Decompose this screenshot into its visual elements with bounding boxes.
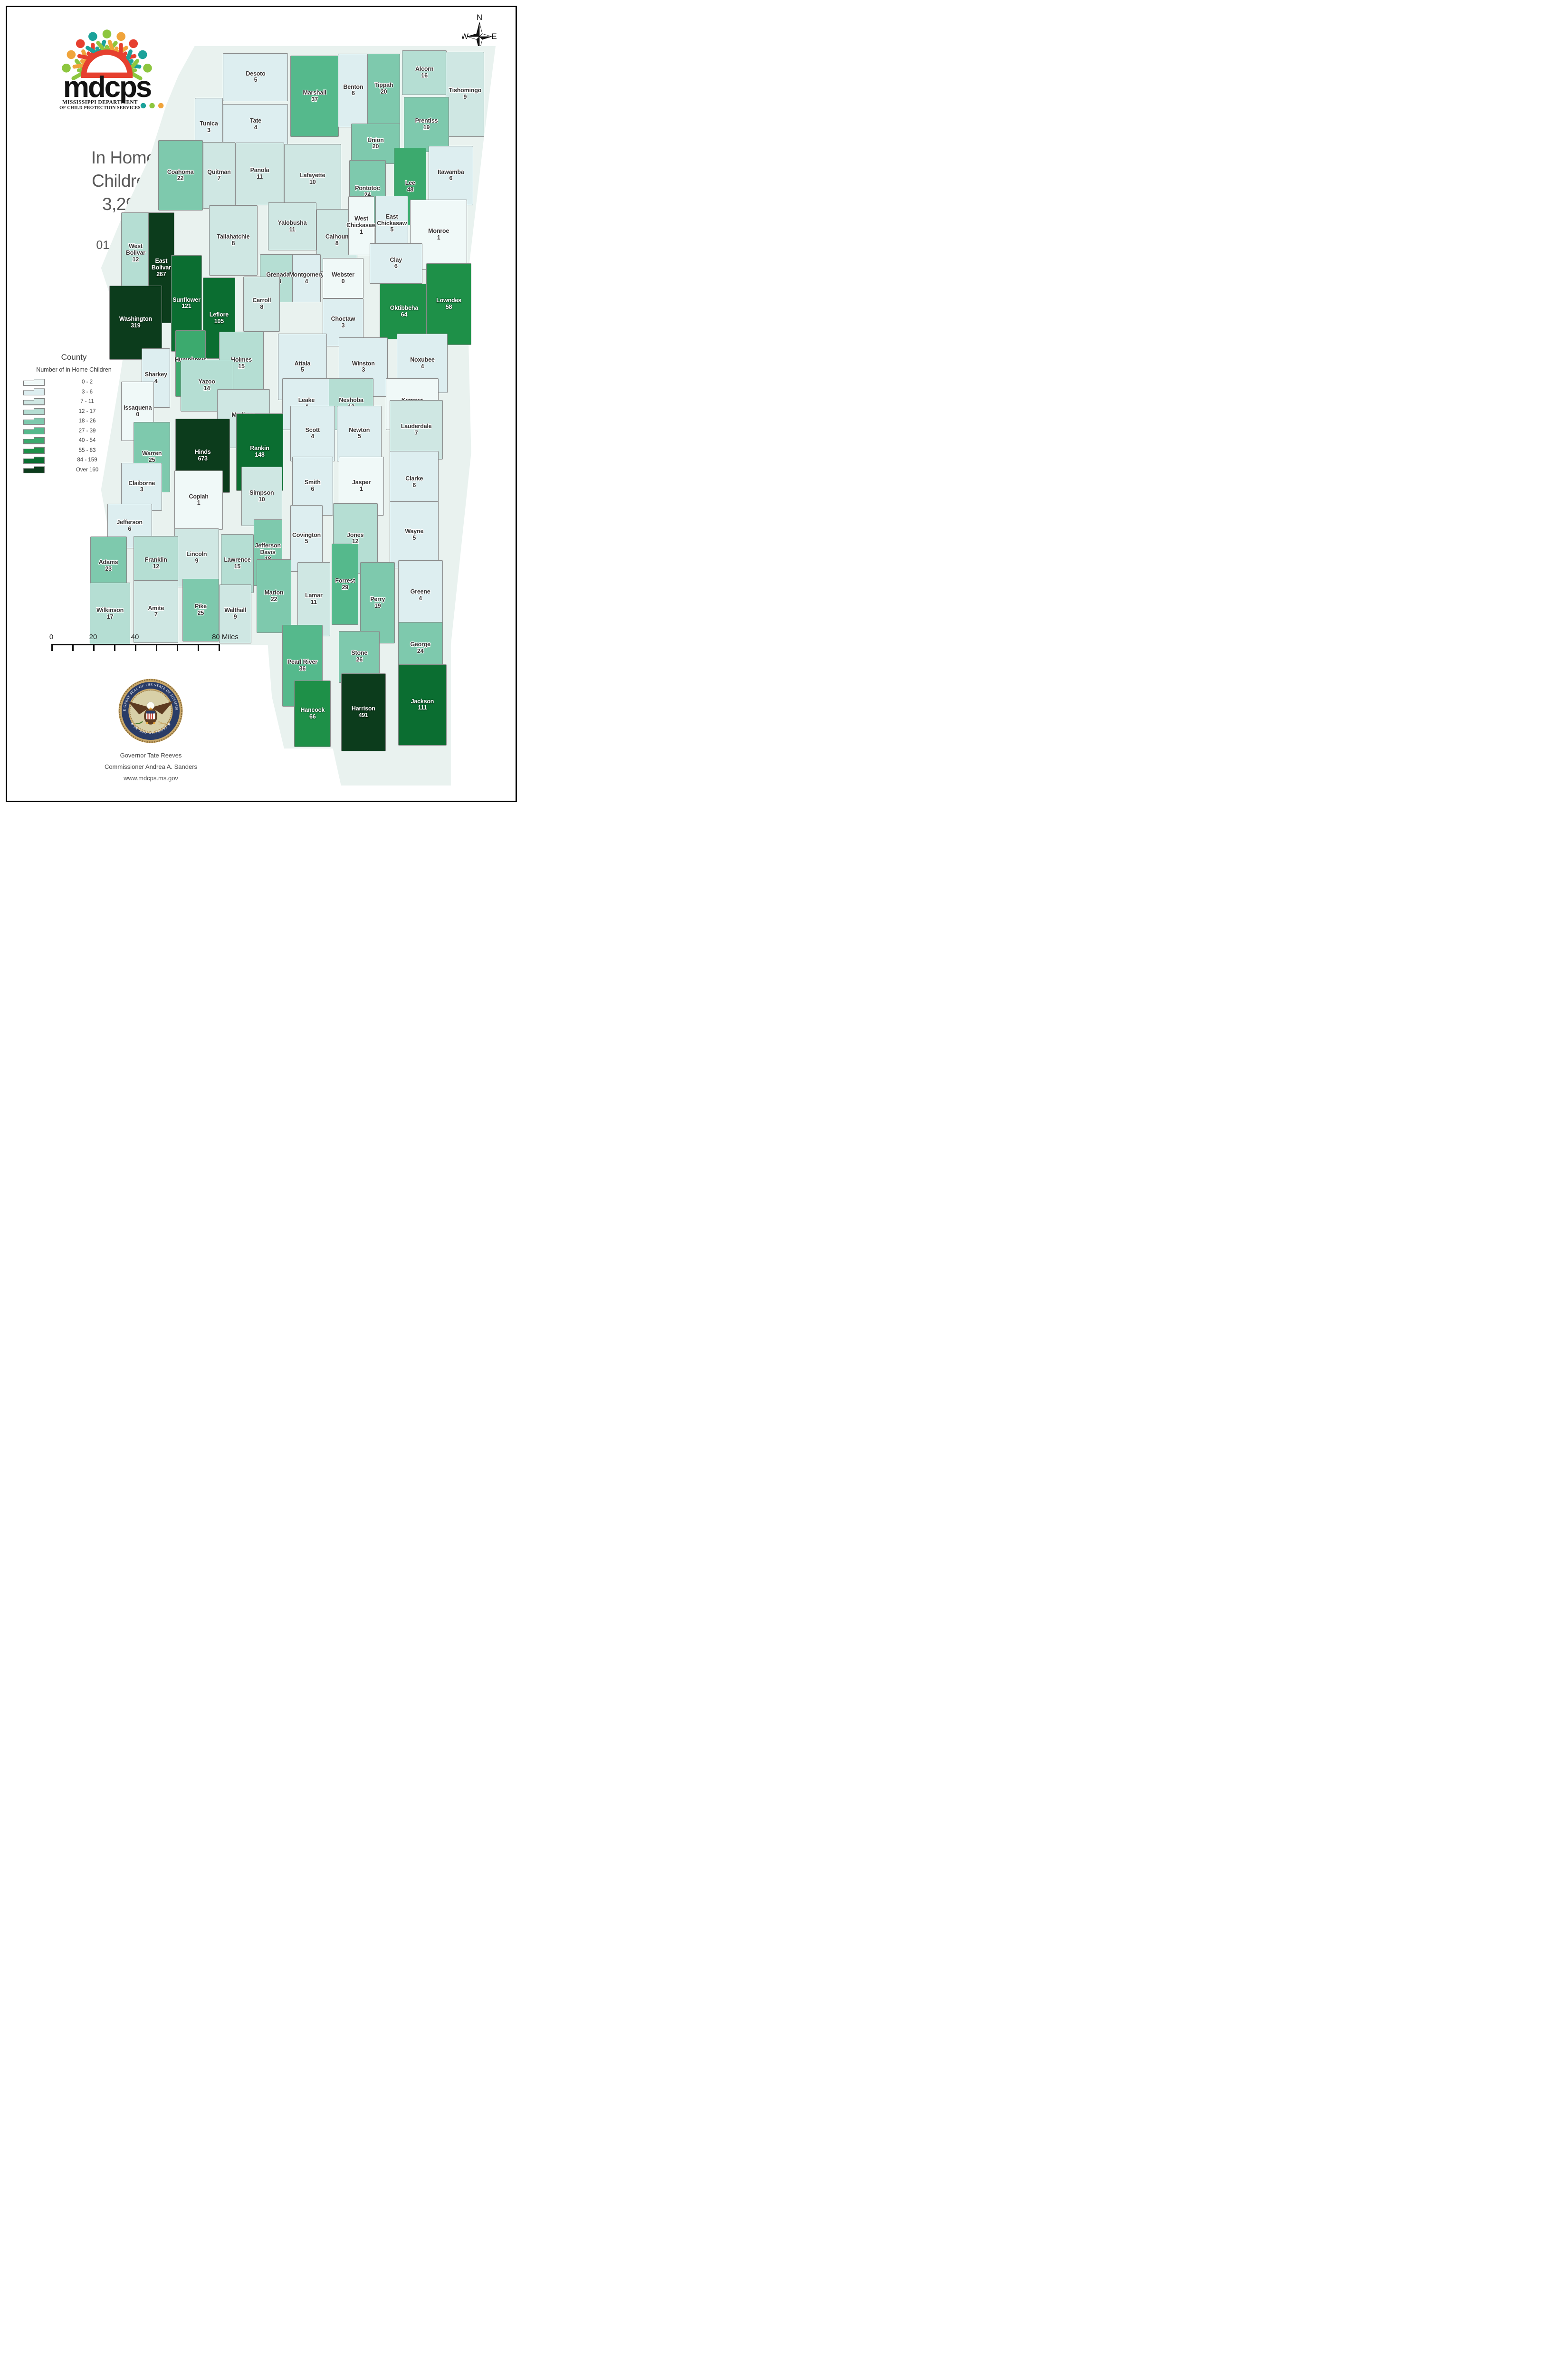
county-name: Perry <box>370 596 385 603</box>
county-montgomery: Montgomery4 <box>292 254 321 302</box>
county-value: 11 <box>257 174 263 181</box>
county-name: Simpson <box>249 490 274 497</box>
scale-tick <box>93 644 95 651</box>
scale-label-20: 20 <box>89 633 97 641</box>
county-value: 5 <box>412 535 416 542</box>
compass-e: E <box>491 32 497 41</box>
scale-bar-line <box>51 644 220 645</box>
county-value: 6 <box>412 482 416 489</box>
county-value: 6 <box>311 486 314 493</box>
credit-governor: Governor Tate Reeves <box>57 750 245 761</box>
county-value: 6 <box>352 90 355 97</box>
scale-label-40: 40 <box>131 633 139 641</box>
scale-bar-labels: 0 20 40 80 Miles <box>51 633 256 642</box>
county-value: 4 <box>254 125 258 131</box>
county-value: 4 <box>305 278 308 285</box>
county-name: Carroll <box>252 297 271 304</box>
county-value: 29 <box>342 584 349 591</box>
county-forrest: Forrest29 <box>332 544 358 625</box>
county-value: 58 <box>446 304 452 311</box>
county-value: 22 <box>271 596 277 603</box>
county-value: 10 <box>258 497 265 503</box>
county-name: Webster <box>332 272 354 278</box>
county-name: Holmes <box>231 357 252 364</box>
county-value: 4 <box>419 595 422 602</box>
county-value: 105 <box>214 318 224 325</box>
scale-label-0: 0 <box>49 633 53 641</box>
county-value: 8 <box>335 240 339 247</box>
county-name: East Chickasaw <box>376 214 407 227</box>
page: mdcps MISSISSIPPI DEPARTMENT OF CHILD PR… <box>0 0 523 808</box>
scale-tick <box>51 644 53 651</box>
county-name: Choctaw <box>331 316 355 323</box>
county-name: West Bolivar <box>122 243 149 257</box>
county-carroll: Carroll8 <box>243 277 280 332</box>
county-name: Prentiss <box>415 118 438 125</box>
credits: Governor Tate Reeves Commissioner Andrea… <box>57 750 245 784</box>
county-value: 3 <box>362 367 365 374</box>
county-harrison: Harrison491 <box>341 673 386 751</box>
county-value: 9 <box>463 94 467 101</box>
county-value: 11 <box>311 599 317 606</box>
county-value: 9 <box>234 614 237 621</box>
county-value: 319 <box>131 323 140 329</box>
county-name: Jefferson <box>116 519 142 526</box>
scale-label-80: 80 Miles <box>212 633 239 641</box>
county-value: 26 <box>356 657 363 663</box>
legend-swatch <box>23 437 45 444</box>
county-wayne: Wayne5 <box>390 501 439 568</box>
county-value: 14 <box>203 385 210 392</box>
county-prentiss: Prentiss19 <box>404 97 449 153</box>
county-value: 491 <box>359 712 368 719</box>
legend-swatch <box>23 447 45 454</box>
county-tate: Tate4 <box>223 104 288 145</box>
county-benton: Benton6 <box>338 54 368 128</box>
county-value: 48 <box>407 187 413 193</box>
county-name: Hancock <box>300 707 325 714</box>
county-name: Jefferson Davis <box>255 543 281 556</box>
legend-swatch <box>23 418 45 425</box>
county-value: 3 <box>207 127 210 134</box>
county-value: 111 <box>418 705 427 711</box>
county-name: Lee <box>405 180 415 187</box>
scale-tick <box>177 644 178 651</box>
county-value: 7 <box>218 175 221 182</box>
county-value: 6 <box>128 526 131 533</box>
county-yalobusha: Yalobusha11 <box>268 202 317 250</box>
legend-swatch <box>23 466 45 473</box>
county-name: Wilkinson <box>96 607 124 614</box>
county-pike: Pike25 <box>182 579 219 642</box>
scale-bar: 0 20 40 80 Miles <box>51 633 256 658</box>
county-value: 36 <box>299 666 306 672</box>
county-lowndes: Lowndes58 <box>426 263 471 345</box>
county-value: 5 <box>254 77 258 84</box>
county-value: 121 <box>182 303 191 310</box>
county-quitman: Quitman7 <box>203 142 235 209</box>
county-webster: Webster0 <box>323 258 363 299</box>
county-value: 4 <box>154 378 158 385</box>
county-value: 64 <box>401 312 408 318</box>
county-name: Leflore <box>210 312 229 318</box>
scale-tick <box>156 644 157 651</box>
credit-website: www.mdcps.ms.gov <box>57 773 245 784</box>
county-newton: Newton5 <box>337 406 382 461</box>
county-value: 1 <box>360 486 363 493</box>
county-value: 0 <box>136 412 139 418</box>
county-tallahatchie: Tallahatchie8 <box>209 205 258 276</box>
county-value: 7 <box>415 430 418 437</box>
county-value: 4 <box>421 364 424 370</box>
county-name: Clarke <box>405 476 423 482</box>
scale-tick <box>135 644 136 651</box>
county-name: Smith <box>305 479 321 486</box>
compass-n: N <box>477 14 482 22</box>
county-value: 1 <box>360 229 363 236</box>
county-name: Hinds <box>195 449 211 456</box>
county-value: 148 <box>255 452 264 459</box>
scale-tick <box>198 644 199 651</box>
county-name: Sharkey <box>145 372 167 378</box>
county-map: Desoto5Marshall37Benton6Tippah20Alcorn16… <box>89 46 496 786</box>
county-itawamba: Itawamba6 <box>429 146 473 205</box>
county-clay: Clay6 <box>370 243 422 284</box>
county-copiah: Copiah1 <box>174 470 223 529</box>
scale-tick <box>72 644 74 651</box>
county-coahoma: Coahoma22 <box>158 140 203 211</box>
county-jackson: Jackson111 <box>398 664 447 746</box>
county-name: Harrison <box>352 706 375 712</box>
county-name: Lafayette <box>300 172 325 179</box>
county-value: 20 <box>381 89 387 96</box>
county-name: Pearl River <box>287 659 317 666</box>
county-name: Pontotoc <box>355 185 380 192</box>
county-value: 267 <box>156 271 166 278</box>
county-west-bolivar: West Bolivar12 <box>121 212 150 294</box>
county-name: Alcorn <box>415 66 433 73</box>
county-desoto: Desoto5 <box>223 53 288 101</box>
county-name: Tate <box>250 118 261 125</box>
county-name: Marshall <box>303 90 326 96</box>
county-value: 5 <box>301 367 304 374</box>
county-simpson: Simpson10 <box>241 467 282 526</box>
county-value: 23 <box>105 566 112 573</box>
scale-tick <box>114 644 115 651</box>
legend-swatch <box>23 408 45 415</box>
county-name: East Bolivar <box>149 258 174 271</box>
scale-tick <box>219 644 220 651</box>
county-name: Jasper <box>352 479 371 486</box>
county-value: 6 <box>394 263 398 270</box>
county-alcorn: Alcorn16 <box>402 50 447 95</box>
county-name: Oktibbeha <box>390 305 418 312</box>
county-value: 5 <box>305 538 308 545</box>
county-name: Marion <box>265 590 284 596</box>
county-value: 22 <box>177 175 184 182</box>
county-scott: Scott4 <box>290 406 335 461</box>
county-value: 9 <box>195 558 198 565</box>
county-tishomingo: Tishomingo9 <box>446 52 484 137</box>
county-name: Wayne <box>405 528 423 535</box>
county-value: 5 <box>358 433 361 440</box>
county-name: Lincoln <box>186 551 207 558</box>
county-value: 7 <box>154 612 158 618</box>
county-value: 6 <box>449 175 452 182</box>
county-name: Issaquena <box>124 405 152 412</box>
county-value: 15 <box>234 564 241 570</box>
county-value: 673 <box>198 456 208 462</box>
county-hancock: Hancock66 <box>294 680 331 747</box>
county-name: Lowndes <box>436 297 461 304</box>
county-value: 0 <box>342 278 345 285</box>
county-name: George <box>410 642 430 648</box>
county-value: 1 <box>197 500 201 507</box>
legend-swatch <box>23 398 45 405</box>
county-name: Noxubee <box>410 357 434 364</box>
county-value: 10 <box>309 179 316 186</box>
county-value: 24 <box>417 648 424 655</box>
legend-swatch <box>23 388 45 395</box>
county-value: 11 <box>289 227 296 233</box>
county-value: 16 <box>421 73 428 79</box>
county-tippah: Tippah20 <box>367 54 400 124</box>
county-value: 25 <box>198 610 204 617</box>
county-value: 3 <box>342 323 345 329</box>
county-value: 20 <box>373 144 379 150</box>
legend-swatch <box>23 457 45 464</box>
county-value: 19 <box>374 603 381 610</box>
county-value: 3 <box>140 487 143 493</box>
county-name: Monroe <box>428 228 449 235</box>
county-marshall: Marshall37 <box>290 56 339 137</box>
county-panola: Panola11 <box>235 143 284 205</box>
mississippi-state-seal: THE GREAT SEAL OF THE STATE OF MISSISSIP… <box>115 676 186 746</box>
county-union: Union20 <box>351 124 400 164</box>
county-value: 12 <box>153 564 159 570</box>
county-oktibbeha: Oktibbeha64 <box>380 284 429 339</box>
county-value: 5 <box>390 227 393 233</box>
county-name: Lauderdale <box>401 423 432 430</box>
county-name: Walthall <box>224 607 246 614</box>
county-value: 37 <box>311 96 318 103</box>
county-value: 8 <box>260 304 263 311</box>
county-value: 8 <box>231 240 235 247</box>
county-name: Forrest <box>335 578 355 584</box>
compass-w: W <box>462 32 468 41</box>
county-value: 19 <box>423 125 430 131</box>
credit-commissioner: Commissioner Andrea A. Sanders <box>57 761 245 773</box>
county-value: 4 <box>311 433 314 440</box>
county-name: Lamar <box>305 593 323 599</box>
county-value: 12 <box>133 257 139 263</box>
county-greene: Greene4 <box>398 560 443 631</box>
county-name: Washington <box>119 316 152 323</box>
county-value: 66 <box>309 714 316 720</box>
county-value: 15 <box>238 364 245 370</box>
county-marion: Marion22 <box>257 559 291 633</box>
county-value: 1 <box>437 235 440 241</box>
county-name: West Chickasaw <box>346 216 376 229</box>
county-name: Montgomery <box>289 272 324 278</box>
legend-swatch <box>23 427 45 434</box>
legend-swatch <box>23 379 45 386</box>
county-value: 17 <box>107 614 114 621</box>
county-name: Adams <box>99 559 118 566</box>
county-name: Yalobusha <box>278 220 307 227</box>
